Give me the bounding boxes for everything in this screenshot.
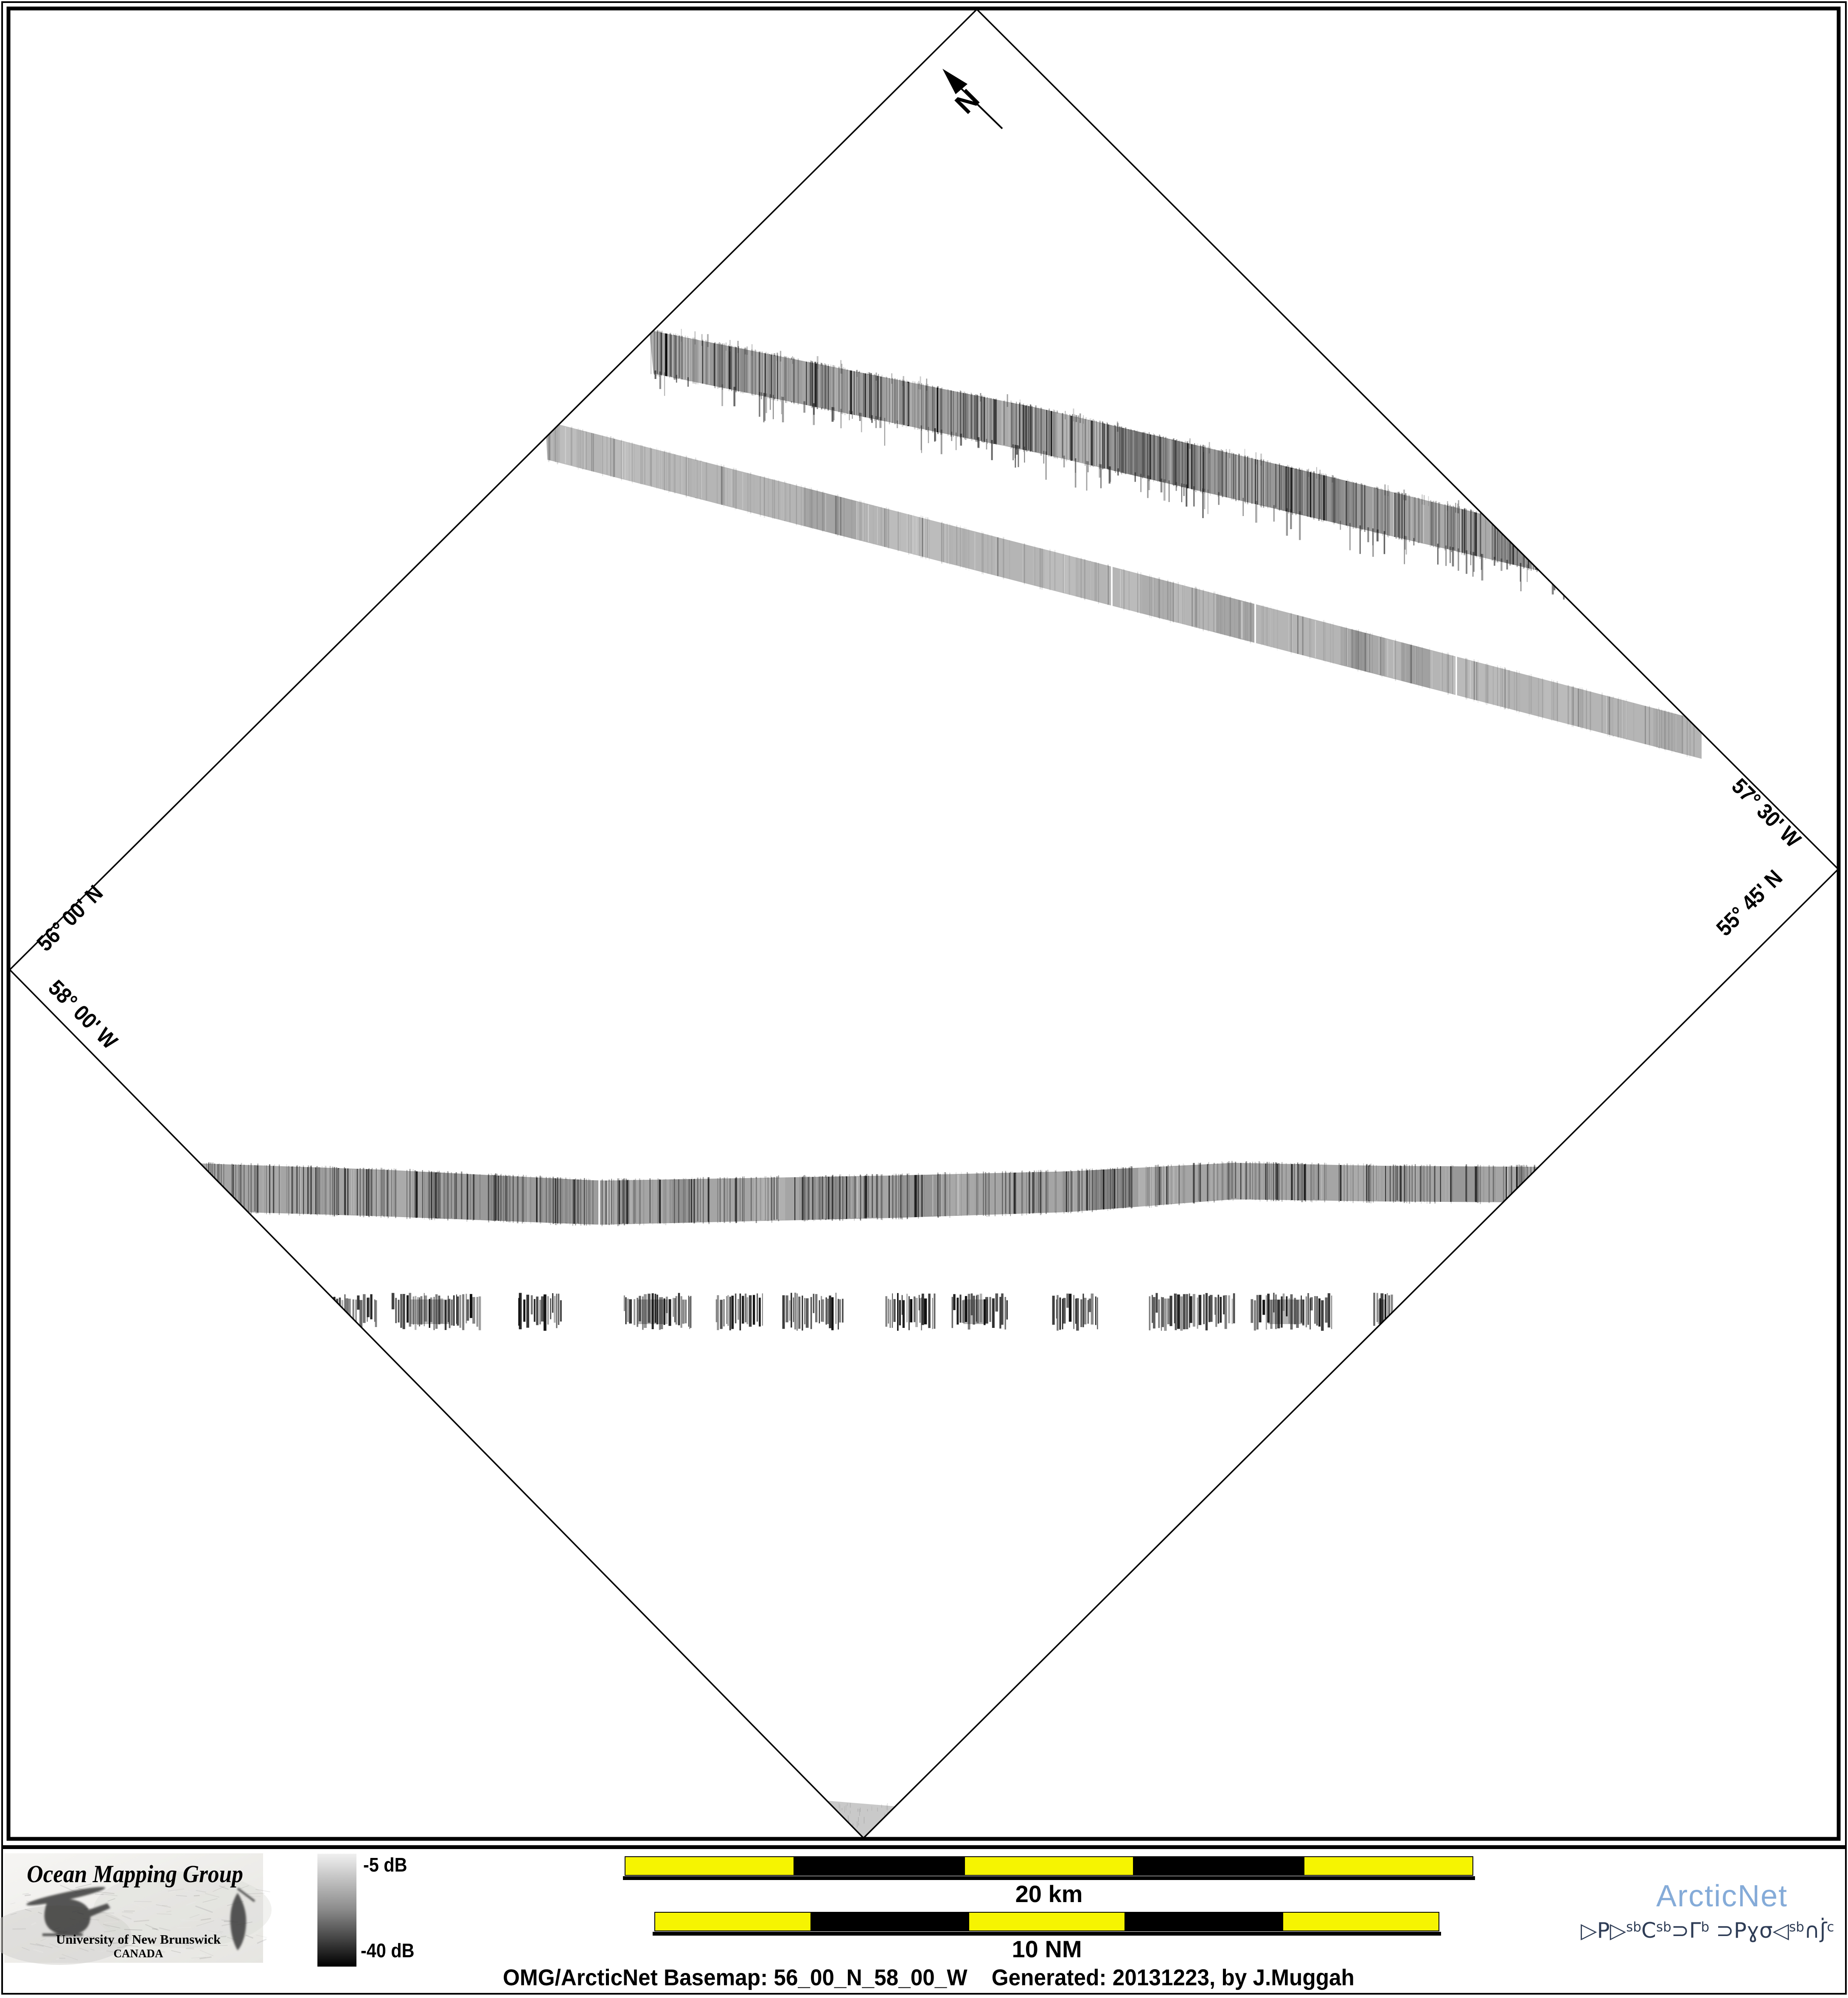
omg-logo-country: CANADA: [114, 1947, 163, 1960]
caption-generated: Generated: 20131223, by J.Muggah: [992, 1965, 1354, 1990]
page-background: [0, 0, 1848, 1996]
colorbar-gradient: [317, 1854, 356, 1967]
omg-logo: Ocean Mapping Group University of New Br…: [0, 1853, 272, 1965]
arcticnet-name: ArcticNet: [1656, 1879, 1788, 1913]
caption-basemap-id: OMG/ArcticNet Basemap: 56_00_N_58_00_W: [503, 1965, 967, 1990]
footer-separator: [1, 1845, 1847, 1849]
colorbar-top-label: -5 dB: [363, 1854, 407, 1876]
scalebar-km-segment: [965, 1857, 1133, 1875]
omg-logo-title: Ocean Mapping Group: [27, 1860, 243, 1888]
basemap-caption: OMG/ArcticNet Basemap: 56_00_N_58_00_W G…: [503, 1965, 1354, 1990]
scalebar-km-segment: [625, 1857, 794, 1875]
basemap-canvas: 56° 00' N 58° 00' W 57° 30' W 55° 45' N …: [0, 0, 1848, 1996]
scalebar-nm-label: 10 NM: [1012, 1936, 1082, 1962]
colorbar-bottom-label: -40 dB: [361, 1940, 415, 1962]
omg-logo-subtitle: University of New Brunswick: [56, 1932, 221, 1947]
scalebar-km-segment: [1304, 1857, 1472, 1875]
scalebar-nm-segment: [1283, 1913, 1439, 1931]
scalebar-nm-segment: [969, 1913, 1125, 1931]
scalebar-nm-segment: [655, 1913, 810, 1931]
scalebar-km-label: 20 km: [1015, 1880, 1083, 1907]
